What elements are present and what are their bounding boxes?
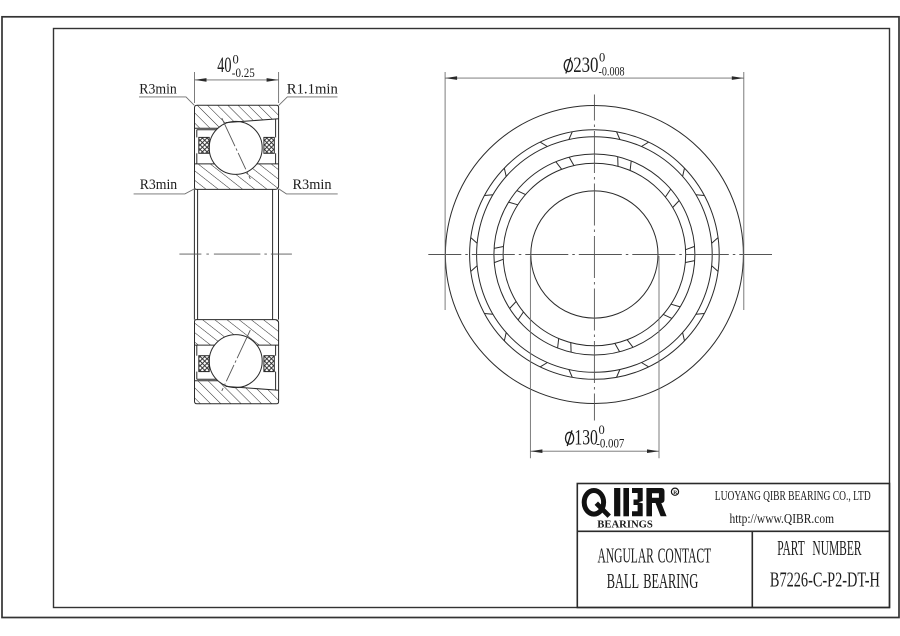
svg-text:R3min: R3min (139, 81, 177, 97)
svg-text:http://www.QIBR.com: http://www.QIBR.com (730, 512, 835, 527)
svg-text:R3min: R3min (140, 177, 178, 193)
svg-text:230: 230 (573, 52, 598, 77)
svg-text:0: 0 (233, 53, 239, 67)
svg-text:R1.1min: R1.1min (287, 81, 338, 97)
svg-text:0: 0 (599, 51, 605, 65)
svg-text:BEARINGS: BEARINGS (597, 520, 653, 531)
svg-text:0: 0 (599, 423, 605, 437)
svg-text:BALL BEARING: BALL BEARING (607, 569, 699, 593)
svg-text:-0.008: -0.008 (599, 65, 625, 79)
svg-text:PART NUMBER: PART NUMBER (777, 536, 861, 560)
svg-text:-0.007: -0.007 (596, 437, 624, 451)
svg-text:R3min: R3min (293, 177, 332, 193)
svg-text:LUOYANG QIBR BEARING CO., LTD: LUOYANG QIBR BEARING CO., LTD (715, 489, 871, 504)
svg-text:B7226-C-P2-DT-H: B7226-C-P2-DT-H (770, 567, 880, 591)
svg-text:ANGULAR CONTACT: ANGULAR CONTACT (598, 544, 712, 568)
svg-text:130: 130 (574, 424, 598, 449)
svg-text:-0.25: -0.25 (232, 66, 255, 80)
svg-text:40: 40 (217, 52, 231, 77)
